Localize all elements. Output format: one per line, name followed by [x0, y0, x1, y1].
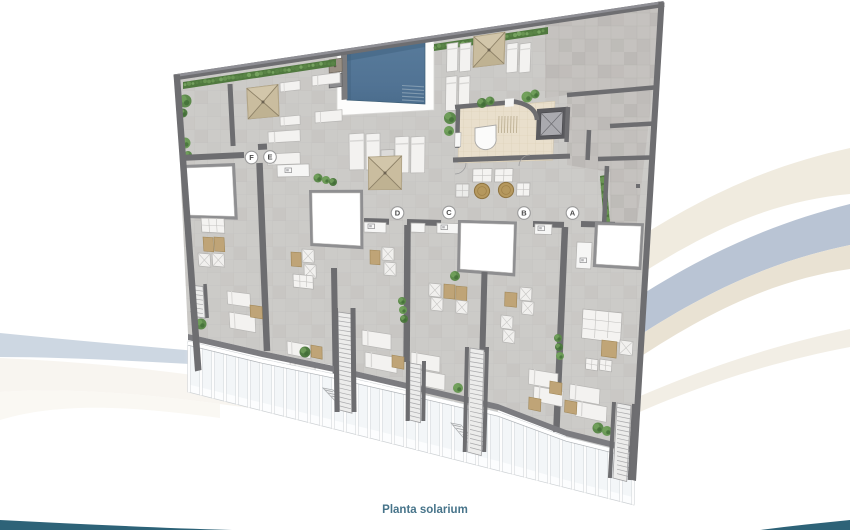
svg-text:E: E [267, 153, 272, 162]
svg-text:A: A [570, 209, 576, 218]
svg-text:D: D [395, 209, 401, 218]
svg-text:F: F [249, 153, 254, 162]
svg-text:C: C [446, 208, 452, 217]
svg-text:Planta solarium: Planta solarium [382, 504, 468, 516]
svg-text:B: B [521, 209, 527, 218]
